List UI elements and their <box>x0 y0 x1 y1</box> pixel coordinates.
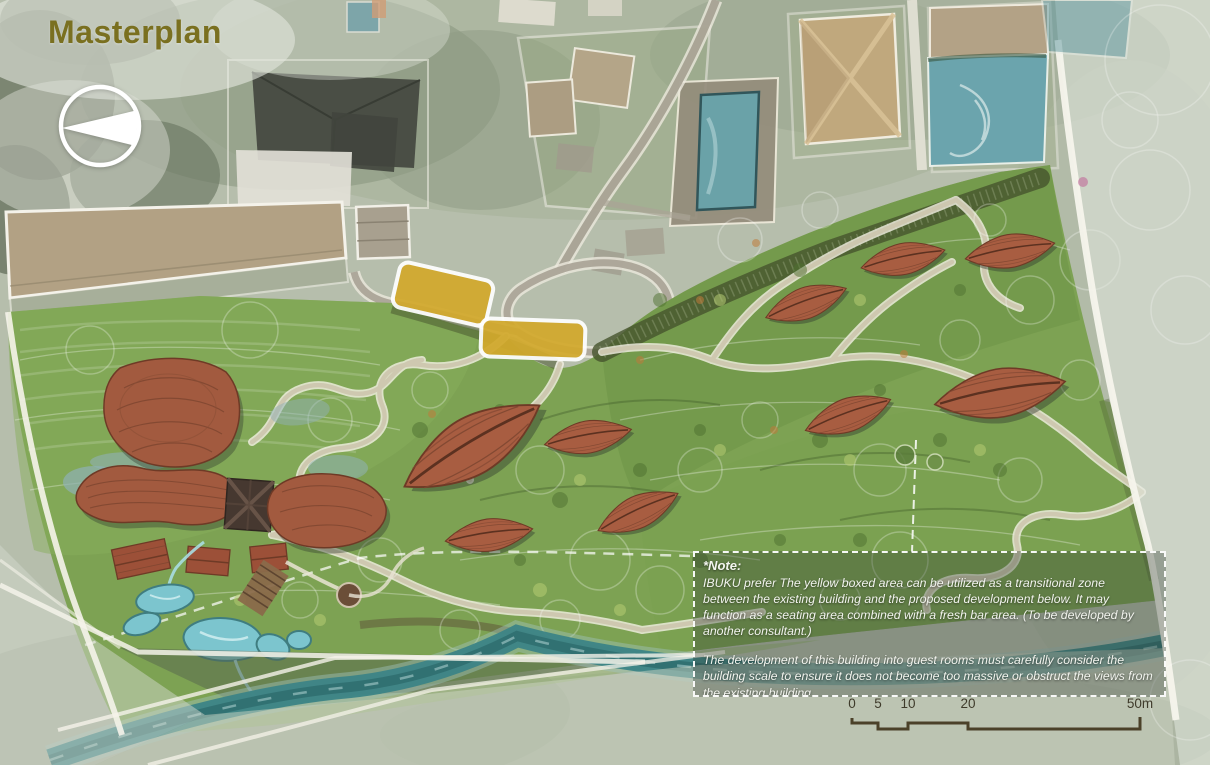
scale-bar: 0 5 10 20 50m <box>838 696 1170 740</box>
page-title: Masterplan <box>48 14 222 51</box>
note-title: *Note: <box>703 557 1154 574</box>
note-paragraph: The development of this building into gu… <box>703 652 1154 697</box>
masterplan-slide: Masterplan *Note: IBUKU prefer The yello… <box>0 0 1210 765</box>
compass-north-arrow <box>50 76 150 176</box>
note-box: *Note: IBUKU prefer The yellow boxed are… <box>693 551 1166 697</box>
note-paragraph: IBUKU prefer The yellow boxed area can b… <box>703 575 1154 639</box>
scale-bar-rule <box>838 696 1170 740</box>
